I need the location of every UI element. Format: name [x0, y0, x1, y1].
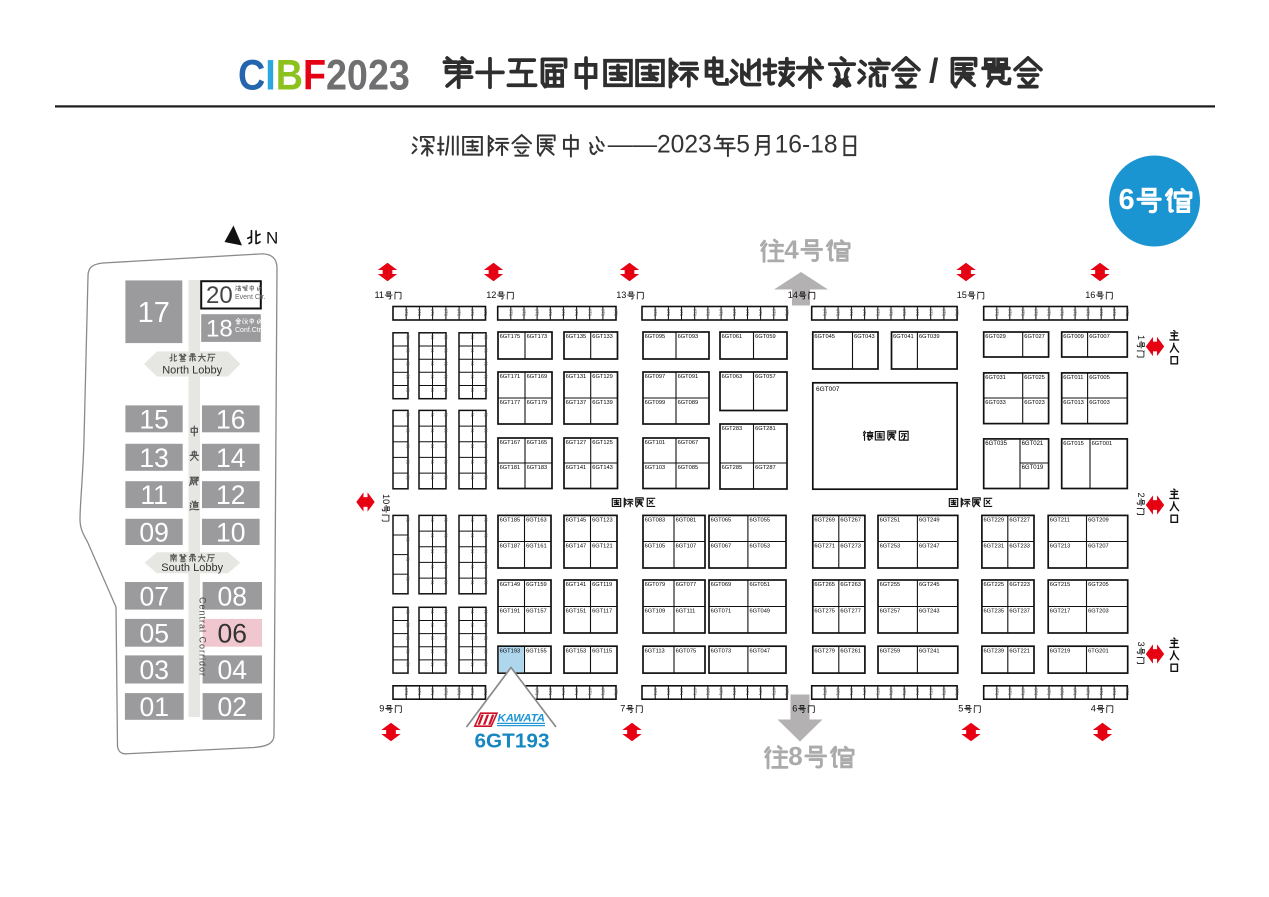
svg-text:6T1: 6T1: [928, 309, 933, 317]
svg-text:6T1: 6T1: [836, 309, 841, 317]
svg-text:07: 07: [140, 581, 169, 611]
svg-text:6T1: 6T1: [653, 688, 658, 696]
svg-text:61: 61: [430, 623, 435, 628]
svg-text:6T1: 6T1: [1086, 309, 1091, 317]
svg-text:6T1: 6T1: [862, 309, 867, 317]
svg-text:6GT175: 6GT175: [500, 334, 521, 340]
svg-text:09: 09: [139, 517, 168, 547]
svg-text:6GT221: 6GT221: [1009, 648, 1030, 654]
svg-text:61: 61: [484, 609, 489, 614]
svg-text:6T1: 6T1: [915, 309, 920, 317]
svg-text:61: 61: [484, 533, 489, 538]
svg-text:6GT141: 6GT141: [566, 582, 587, 588]
svg-text:6T1: 6T1: [574, 688, 579, 696]
svg-text:6GT203: 6GT203: [1088, 609, 1109, 615]
svg-text:06: 06: [218, 618, 247, 648]
svg-text:6GT015: 6GT015: [1063, 441, 1084, 447]
svg-text:/: /: [929, 53, 939, 91]
svg-text:6GT031: 6GT031: [985, 375, 1006, 381]
svg-text:61: 61: [470, 636, 475, 641]
svg-text:61: 61: [444, 517, 449, 522]
svg-text:6GT139: 6GT139: [592, 400, 613, 406]
svg-text:6GT169: 6GT169: [527, 374, 548, 380]
svg-text:61: 61: [484, 412, 489, 417]
svg-text:6GT209: 6GT209: [1088, 518, 1109, 524]
svg-text:6GT089: 6GT089: [678, 400, 699, 406]
svg-text:6T1: 6T1: [1073, 688, 1078, 696]
svg-text:11: 11: [375, 290, 385, 300]
svg-text:6GT115: 6GT115: [592, 648, 612, 654]
svg-text:6T1: 6T1: [823, 309, 828, 317]
svg-text:6T1: 6T1: [614, 309, 619, 317]
svg-text:6GT193: 6GT193: [475, 730, 550, 753]
svg-text:61: 61: [484, 348, 489, 353]
svg-text:61: 61: [470, 564, 475, 569]
svg-text:6GT003: 6GT003: [1089, 400, 1110, 406]
svg-text:04: 04: [218, 655, 247, 685]
svg-text:10: 10: [216, 517, 245, 547]
svg-text:6GT243: 6GT243: [919, 609, 940, 615]
svg-text:6GT123: 6GT123: [592, 518, 613, 524]
svg-text:6T1: 6T1: [719, 688, 724, 696]
svg-text:6GT069: 6GT069: [711, 582, 732, 588]
svg-text:4: 4: [1091, 704, 1096, 714]
svg-text:6GT285: 6GT285: [722, 465, 743, 471]
svg-text:6GT055: 6GT055: [750, 518, 771, 524]
svg-text:6GT157: 6GT157: [526, 609, 547, 615]
svg-text:6T1: 6T1: [758, 688, 763, 696]
svg-text:6T1: 6T1: [785, 309, 790, 317]
svg-text:61: 61: [406, 609, 411, 614]
svg-text:6GT141: 6GT141: [566, 465, 587, 471]
svg-text:05: 05: [140, 618, 169, 648]
svg-text:6GT133: 6GT133: [592, 334, 613, 340]
svg-text:61: 61: [470, 388, 475, 393]
svg-text:16: 16: [216, 404, 245, 434]
svg-text:6GT249: 6GT249: [919, 518, 940, 524]
svg-text:3: 3: [1136, 642, 1146, 647]
svg-text:6GT261: 6GT261: [840, 648, 861, 654]
svg-text:61: 61: [444, 564, 449, 569]
svg-text:6GT021: 6GT021: [1022, 441, 1044, 447]
svg-text:6GT247: 6GT247: [919, 544, 940, 550]
svg-text:61: 61: [430, 549, 435, 554]
svg-text:6GT043: 6GT043: [854, 334, 875, 340]
svg-text:61: 61: [430, 609, 435, 614]
svg-text:Central Corridor: Central Corridor: [198, 597, 208, 677]
svg-text:61: 61: [484, 459, 489, 464]
svg-text:6GT239: 6GT239: [984, 648, 1005, 654]
svg-text:F: F: [303, 50, 326, 99]
svg-text:61: 61: [470, 361, 475, 366]
svg-text:6GT005: 6GT005: [1089, 375, 1110, 381]
svg-text:6T1: 6T1: [955, 688, 960, 696]
svg-text:61: 61: [470, 444, 475, 449]
svg-text:6GT071: 6GT071: [711, 609, 732, 615]
svg-text:6GT127: 6GT127: [566, 440, 587, 446]
svg-text:61: 61: [406, 649, 411, 654]
svg-text:6GT027: 6GT027: [1024, 334, 1045, 340]
svg-text:6T1: 6T1: [928, 688, 933, 696]
svg-text:61: 61: [444, 580, 449, 585]
svg-text:61: 61: [484, 361, 489, 366]
svg-text:61: 61: [444, 361, 449, 366]
svg-text:6T1: 6T1: [823, 688, 828, 696]
svg-text:61: 61: [406, 537, 411, 542]
svg-text:14: 14: [216, 443, 245, 473]
svg-text:6T1: 6T1: [417, 688, 422, 696]
svg-text:6GT171: 6GT171: [500, 374, 521, 380]
svg-text:03: 03: [140, 655, 169, 685]
svg-text:6T1: 6T1: [483, 309, 488, 317]
svg-text:6T1: 6T1: [404, 688, 409, 696]
svg-text:6T1: 6T1: [1086, 688, 1091, 696]
svg-text:61: 61: [430, 564, 435, 569]
svg-text:6GT091: 6GT091: [678, 374, 699, 380]
svg-text:6GT161: 6GT161: [526, 544, 547, 550]
svg-text:6T1: 6T1: [548, 309, 553, 317]
svg-text:6GT067: 6GT067: [678, 440, 699, 446]
svg-text:6T1: 6T1: [745, 309, 750, 317]
svg-text:6GT149: 6GT149: [500, 582, 521, 588]
svg-text:6GT237: 6GT237: [1009, 609, 1030, 615]
svg-text:N: N: [266, 229, 278, 248]
svg-text:6GT085: 6GT085: [678, 465, 699, 471]
svg-text:6GT039: 6GT039: [919, 334, 940, 340]
svg-text:6T1: 6T1: [1034, 309, 1039, 317]
svg-text:61: 61: [430, 636, 435, 641]
svg-text:6GT265: 6GT265: [814, 582, 835, 588]
svg-text:B: B: [276, 50, 303, 99]
svg-text:6T1: 6T1: [1060, 688, 1065, 696]
svg-text:6T1: 6T1: [1007, 688, 1012, 696]
svg-text:6T1: 6T1: [457, 688, 462, 696]
svg-text:6GT049: 6GT049: [750, 609, 771, 615]
svg-text:6T1: 6T1: [849, 309, 854, 317]
svg-text:61: 61: [470, 649, 475, 654]
svg-text:6T1: 6T1: [706, 309, 711, 317]
svg-text:6GT011: 6GT011: [1063, 375, 1083, 381]
svg-text:6TG201: 6TG201: [1088, 648, 1109, 654]
svg-text:13: 13: [616, 290, 626, 300]
svg-text:6GT283: 6GT283: [722, 426, 743, 432]
svg-text:61: 61: [470, 412, 475, 417]
svg-text:6GT207: 6GT207: [1088, 544, 1109, 550]
svg-text:6T1: 6T1: [1034, 688, 1039, 696]
svg-text:6T1: 6T1: [994, 688, 999, 696]
svg-text:6T1: 6T1: [732, 688, 737, 696]
svg-text:North Lobby: North Lobby: [162, 365, 222, 377]
svg-text:14: 14: [788, 290, 798, 300]
svg-text:61: 61: [470, 580, 475, 585]
svg-text:61: 61: [470, 459, 475, 464]
svg-text:6GT267: 6GT267: [840, 518, 861, 524]
svg-text:61: 61: [430, 459, 435, 464]
svg-text:6T1: 6T1: [535, 688, 540, 696]
svg-text:6T1: 6T1: [1099, 309, 1104, 317]
svg-text:6GT279: 6GT279: [814, 648, 835, 654]
svg-text:6T1: 6T1: [561, 688, 566, 696]
svg-text:61: 61: [430, 662, 435, 667]
svg-text:6GT147: 6GT147: [566, 544, 587, 550]
svg-text:6GT271: 6GT271: [814, 544, 835, 550]
svg-text:61: 61: [406, 459, 411, 464]
svg-text:61: 61: [444, 388, 449, 393]
svg-text:61: 61: [406, 576, 411, 581]
svg-text:6GT117: 6GT117: [592, 609, 612, 615]
svg-text:6GT007: 6GT007: [1089, 334, 1110, 340]
svg-text:61: 61: [484, 564, 489, 569]
svg-text:6GT245: 6GT245: [919, 582, 940, 588]
svg-text:6GT217: 6GT217: [1050, 609, 1071, 615]
svg-text:61: 61: [444, 475, 449, 480]
svg-text:6GT131: 6GT131: [566, 374, 587, 380]
svg-text:6GT101: 6GT101: [645, 440, 666, 446]
svg-text:61: 61: [406, 335, 411, 340]
svg-text:6T1: 6T1: [666, 309, 671, 317]
svg-text:6T1: 6T1: [1021, 309, 1026, 317]
svg-text:6GT045: 6GT045: [814, 334, 835, 340]
svg-text:6T1: 6T1: [732, 309, 737, 317]
svg-text:61: 61: [406, 636, 411, 641]
svg-text:61: 61: [470, 428, 475, 433]
svg-text:6GT107: 6GT107: [676, 544, 697, 550]
svg-text:61: 61: [406, 517, 411, 522]
svg-text:6GT103: 6GT103: [645, 465, 666, 471]
svg-text:6T1: 6T1: [1021, 688, 1026, 696]
svg-text:6T1: 6T1: [404, 309, 409, 317]
svg-text:5: 5: [958, 704, 963, 714]
svg-text:01: 01: [140, 692, 169, 722]
svg-text:6T1: 6T1: [955, 309, 960, 317]
svg-text:6GT099: 6GT099: [645, 400, 666, 406]
svg-text:6T1: 6T1: [706, 688, 711, 696]
svg-text:6GT025: 6GT025: [1024, 375, 1045, 381]
svg-text:61: 61: [470, 374, 475, 379]
svg-text:6T1: 6T1: [1060, 309, 1065, 317]
svg-text:61: 61: [444, 412, 449, 417]
svg-text:6GT251: 6GT251: [880, 518, 901, 524]
svg-text:6GT253: 6GT253: [880, 544, 901, 550]
svg-text:10: 10: [381, 494, 391, 504]
svg-text:6T1: 6T1: [758, 309, 763, 317]
svg-text:6GT083: 6GT083: [645, 518, 666, 524]
svg-text:6T1: 6T1: [535, 309, 540, 317]
svg-text:6T1: 6T1: [666, 688, 671, 696]
svg-text:61: 61: [406, 444, 411, 449]
svg-text:7: 7: [620, 704, 625, 714]
svg-text:6T1: 6T1: [1099, 688, 1104, 696]
svg-text:6GT075: 6GT075: [676, 648, 697, 654]
svg-text:6GT275: 6GT275: [814, 609, 835, 615]
svg-text:6T1: 6T1: [574, 309, 579, 317]
svg-text:8: 8: [788, 741, 802, 771]
svg-text:61: 61: [470, 348, 475, 353]
svg-text:6T1: 6T1: [508, 309, 513, 317]
svg-text:6T1: 6T1: [1047, 309, 1052, 317]
svg-text:61: 61: [444, 609, 449, 614]
svg-text:6GT287: 6GT287: [755, 465, 776, 471]
svg-text:6GT153: 6GT153: [566, 648, 587, 654]
svg-text:6GT205: 6GT205: [1088, 582, 1109, 588]
svg-text:6GT053: 6GT053: [750, 544, 771, 550]
svg-text:6GT007: 6GT007: [816, 386, 840, 393]
svg-text:61: 61: [430, 475, 435, 480]
svg-text:6GT277: 6GT277: [840, 609, 861, 615]
svg-text:6GT035: 6GT035: [985, 441, 1007, 447]
svg-text:61: 61: [430, 428, 435, 433]
svg-text:6GT233: 6GT233: [1009, 544, 1030, 550]
svg-text:6GT179: 6GT179: [527, 400, 548, 406]
svg-text:6T1: 6T1: [417, 309, 422, 317]
svg-text:6T1: 6T1: [601, 688, 606, 696]
svg-text:6GT167: 6GT167: [500, 440, 521, 446]
svg-text:6GT255: 6GT255: [880, 582, 901, 588]
svg-text:6GT119: 6GT119: [592, 582, 612, 588]
svg-text:61: 61: [470, 335, 475, 340]
svg-text:61: 61: [406, 388, 411, 393]
svg-text:61: 61: [406, 475, 411, 480]
svg-text:6GT093: 6GT093: [678, 334, 699, 340]
svg-text:61: 61: [430, 388, 435, 393]
svg-text:17: 17: [138, 297, 170, 329]
svg-text:6T1: 6T1: [1125, 688, 1130, 696]
svg-text:6T1: 6T1: [1112, 309, 1117, 317]
svg-text:6GT009: 6GT009: [1063, 334, 1084, 340]
svg-text:6T1: 6T1: [470, 309, 475, 317]
svg-text:6GT145: 6GT145: [566, 518, 587, 524]
svg-text:61: 61: [470, 475, 475, 480]
svg-text:5: 5: [736, 132, 750, 159]
svg-text:61: 61: [484, 636, 489, 641]
svg-text:61: 61: [430, 580, 435, 585]
svg-text:6GT235: 6GT235: [984, 609, 1005, 615]
svg-text:61: 61: [444, 444, 449, 449]
svg-text:13: 13: [139, 443, 168, 473]
svg-text:6T1: 6T1: [457, 309, 462, 317]
svg-text:61: 61: [444, 428, 449, 433]
svg-text:6T1: 6T1: [1007, 309, 1012, 317]
svg-text:61: 61: [430, 335, 435, 340]
svg-text:6GT057: 6GT057: [755, 374, 776, 380]
svg-text:6GT227: 6GT227: [1009, 518, 1030, 524]
svg-text:61: 61: [470, 609, 475, 614]
svg-text:6GT081: 6GT081: [676, 518, 697, 524]
svg-text:6GT063: 6GT063: [722, 374, 743, 380]
svg-text:61: 61: [406, 623, 411, 628]
svg-text:6T1: 6T1: [1047, 688, 1052, 696]
svg-text:6GT073: 6GT073: [711, 648, 732, 654]
svg-text:61: 61: [444, 374, 449, 379]
svg-text:6GT023: 6GT023: [1024, 400, 1045, 406]
svg-text:6T1: 6T1: [942, 688, 947, 696]
svg-text:6T1: 6T1: [587, 688, 592, 696]
svg-text:08: 08: [218, 581, 247, 611]
svg-text:6GT121: 6GT121: [592, 544, 613, 550]
svg-text:——2023: ——2023: [608, 132, 712, 159]
svg-text:16-18: 16-18: [775, 132, 838, 159]
svg-text:6GT183: 6GT183: [527, 465, 548, 471]
svg-text:61: 61: [444, 662, 449, 667]
svg-text:6T1: 6T1: [942, 309, 947, 317]
svg-text:6GT041: 6GT041: [893, 334, 914, 340]
svg-text:61: 61: [406, 557, 411, 562]
svg-text:61: 61: [444, 636, 449, 641]
svg-text:61: 61: [484, 517, 489, 522]
svg-text:6GT059: 6GT059: [755, 334, 776, 340]
svg-text:61: 61: [484, 428, 489, 433]
svg-text:6T1: 6T1: [1125, 309, 1130, 317]
svg-text:61: 61: [430, 348, 435, 353]
svg-text:6T1: 6T1: [483, 688, 488, 696]
svg-text:6T1: 6T1: [587, 309, 592, 317]
svg-text:6T1: 6T1: [1112, 688, 1117, 696]
svg-text:6GT263: 6GT263: [840, 582, 861, 588]
svg-text:6T1: 6T1: [430, 309, 435, 317]
svg-text:6GT241: 6GT241: [919, 648, 940, 654]
svg-text:6T1: 6T1: [614, 688, 619, 696]
svg-text:6T1: 6T1: [889, 309, 894, 317]
svg-text:6GT177: 6GT177: [500, 400, 521, 406]
svg-text:61: 61: [470, 549, 475, 554]
svg-text:61: 61: [484, 475, 489, 480]
svg-text:6T1: 6T1: [692, 309, 697, 317]
svg-text:61: 61: [406, 662, 411, 667]
svg-text:6GT137: 6GT137: [566, 400, 587, 406]
svg-text:6GT113: 6GT113: [645, 648, 665, 654]
svg-text:6GT163: 6GT163: [526, 518, 547, 524]
svg-text:6GT225: 6GT225: [984, 582, 1005, 588]
svg-text:9: 9: [379, 704, 384, 714]
svg-text:15: 15: [957, 290, 967, 300]
svg-text:6T1: 6T1: [875, 688, 880, 696]
svg-text:6GT143: 6GT143: [592, 465, 613, 471]
svg-text:6GT193: 6GT193: [500, 648, 521, 654]
svg-text:61: 61: [430, 374, 435, 379]
svg-text:Conf.Ctr: Conf.Ctr: [235, 327, 262, 334]
svg-text:6T1: 6T1: [902, 309, 907, 317]
svg-text:6T1: 6T1: [849, 688, 854, 696]
svg-text:61: 61: [444, 549, 449, 554]
svg-text:6GT191: 6GT191: [500, 609, 521, 615]
svg-text:3: 3: [389, 50, 410, 99]
svg-text:61: 61: [444, 623, 449, 628]
svg-text:6T1: 6T1: [444, 688, 449, 696]
svg-text:6T1: 6T1: [548, 688, 553, 696]
svg-text:6T1: 6T1: [862, 688, 867, 696]
svg-text:6GT125: 6GT125: [592, 440, 613, 446]
svg-text:6GT181: 6GT181: [500, 465, 521, 471]
svg-text:6GT097: 6GT097: [645, 374, 666, 380]
svg-text:6GT111: 6GT111: [676, 609, 696, 615]
svg-text:61: 61: [406, 361, 411, 366]
svg-text:Event Ctr.: Event Ctr.: [235, 294, 266, 301]
svg-text:6GT129: 6GT129: [592, 374, 613, 380]
svg-text:02: 02: [218, 692, 247, 722]
svg-text:6T1: 6T1: [836, 688, 841, 696]
svg-text:61: 61: [484, 374, 489, 379]
svg-text:6GT013: 6GT013: [1063, 400, 1084, 406]
svg-text:6T1: 6T1: [875, 309, 880, 317]
svg-text:6GT173: 6GT173: [527, 334, 548, 340]
svg-text:61: 61: [430, 517, 435, 522]
svg-text:6T1: 6T1: [745, 688, 750, 696]
svg-text:6GT165: 6GT165: [527, 440, 548, 446]
svg-text:6GT047: 6GT047: [750, 648, 771, 654]
svg-text:6GT187: 6GT187: [500, 544, 521, 550]
svg-text:6GT219: 6GT219: [1050, 648, 1071, 654]
svg-text:6GT211: 6GT211: [1050, 518, 1070, 524]
